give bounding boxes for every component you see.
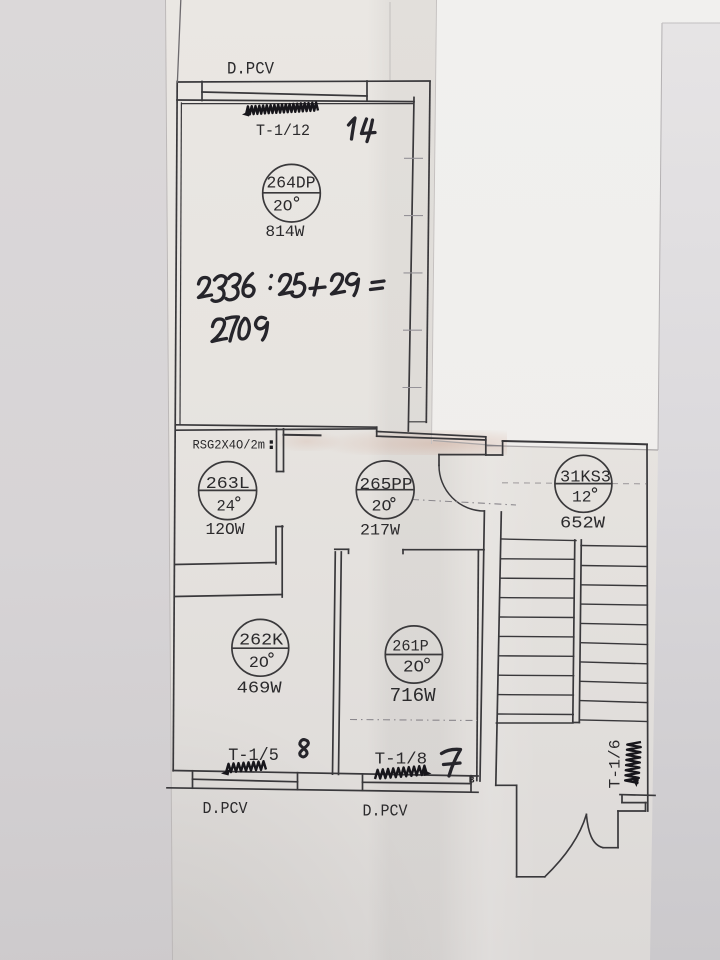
svg-text:263L: 263L: [206, 475, 250, 494]
svg-text:D.PCV: D.PCV: [227, 60, 274, 80]
svg-text:T-1/12: T-1/12: [256, 122, 310, 140]
svg-text:217W: 217W: [360, 522, 400, 540]
svg-text:T-1/6: T-1/6: [607, 740, 625, 789]
svg-text:716W: 716W: [390, 685, 437, 707]
svg-text:12: 12: [572, 489, 592, 507]
svg-text:RSG2X4O/2m: RSG2X4O/2m: [193, 439, 266, 453]
svg-text:12OW: 12OW: [206, 520, 245, 539]
svg-text:652W: 652W: [560, 515, 606, 534]
svg-text:261P: 261P: [392, 638, 429, 656]
svg-text:B: B: [469, 775, 475, 786]
svg-text:262K: 262K: [239, 632, 284, 651]
svg-text:31KS3: 31KS3: [560, 467, 611, 486]
svg-text:2O: 2O: [372, 497, 392, 515]
svg-text:24: 24: [217, 497, 236, 515]
svg-text:814W: 814W: [265, 223, 304, 241]
svg-text:2O: 2O: [249, 654, 269, 672]
svg-text:D.PCV: D.PCV: [363, 802, 408, 821]
svg-text:264DP: 264DP: [267, 174, 316, 193]
svg-text:D.PCV: D.PCV: [203, 799, 248, 818]
svg-text:2O: 2O: [273, 198, 293, 216]
svg-text:469W: 469W: [237, 680, 283, 699]
svg-text:2O: 2O: [403, 658, 424, 677]
svg-text:265PP: 265PP: [360, 475, 413, 494]
